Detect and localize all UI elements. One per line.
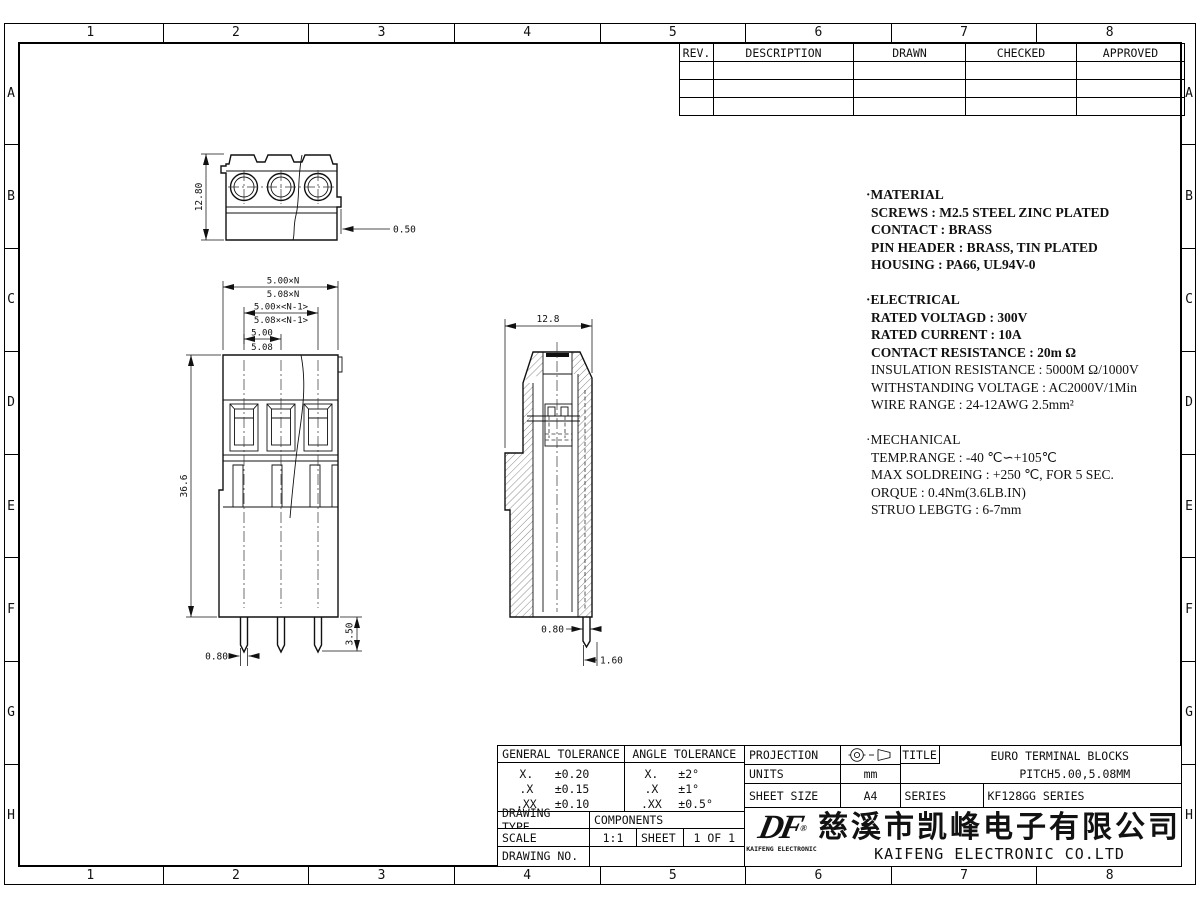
front-view: 5.00×N 5.08×N 5.00×<N-1> 5.08×<N-1> 5.00… — [179, 277, 362, 667]
dimension-label: 5.08 — [251, 343, 273, 353]
drawing-type-row: DRAWING TYPE COMPONENTS — [497, 811, 746, 830]
tolerance-value: ±2° — [678, 767, 744, 781]
dimension-label: 0.80 — [205, 652, 228, 663]
units-value: mm — [840, 765, 900, 784]
tolerance-label: X. — [625, 767, 679, 781]
angle-tolerance-table: ANGLE TOLERANCE X.±2° .X±1° .XX±0.5° — [624, 745, 746, 812]
tolerance-label: .XX — [625, 797, 679, 811]
note-line: MAX SOLDREING : +250 ℃, FOR 5 SEC. — [866, 466, 1186, 484]
border-zone-letters-left: A B C D E F G H — [4, 42, 18, 867]
sheet-size-row: SHEET SIZE A4 — [744, 783, 901, 809]
dimension-label: 5.00×<N-1> — [254, 303, 309, 313]
note-line: HOUSING : PA66, UL94V-0 — [866, 256, 1186, 274]
zone-label: 8 — [1037, 23, 1182, 42]
projection-row: PROJECTION — [744, 745, 901, 765]
drawing-type-value: COMPONENTS — [589, 812, 745, 829]
note-line: INSULATION RESISTANCE : 5000M Ω/1000V — [866, 361, 1186, 379]
note-line: SCREWS : M2.5 STEEL ZINC PLATED — [866, 204, 1186, 222]
table-title: ANGLE TOLERANCE — [625, 746, 745, 763]
dimension-label: 12.80 — [194, 182, 205, 211]
scale-value: 1:1 — [589, 829, 636, 846]
tolerance-value: ±0.5° — [678, 797, 744, 811]
company-name-english: KAIFENG ELECTRONIC CO.LTD — [818, 845, 1181, 863]
dimension-label: 36.6 — [179, 474, 190, 497]
zone-label: 4 — [455, 866, 601, 885]
sheet-size-label: SHEET SIZE — [745, 784, 840, 808]
zone-label: D — [4, 352, 18, 455]
tolerance-label: .X — [625, 782, 679, 796]
zone-label: 3 — [309, 23, 455, 42]
sheet-value: 1 OF 1 — [683, 829, 745, 846]
note-line: WIRE RANGE : 24-12AWG 2.5mm² — [866, 396, 1186, 414]
zone-label: 5 — [601, 23, 747, 42]
note-line: PIN HEADER : BRASS, TIN PLATED — [866, 239, 1186, 257]
rev-header: APPROVED — [1077, 44, 1185, 62]
mechanical-notes: ·MECHANICAL TEMP.RANGE : -40 ℃∽+105℃ MAX… — [866, 431, 1186, 519]
tolerance-value: ±0.15 — [555, 782, 624, 796]
dimension-label: 12.8 — [537, 314, 560, 325]
zone-label: G — [4, 662, 18, 765]
title-label: TITLE — [900, 745, 940, 764]
top-view: 12.80 0.50 — [194, 154, 416, 240]
sheet-label: SHEET — [636, 829, 683, 846]
series-label: SERIES — [901, 784, 983, 808]
rev-empty-row — [680, 98, 1185, 116]
drawing-no-row: DRAWING NO. — [497, 846, 746, 868]
zone-label: 3 — [309, 866, 455, 885]
zone-label: 2 — [164, 866, 310, 885]
zone-label: 4 — [455, 23, 601, 42]
dimension-label: 3.50 — [345, 622, 356, 645]
note-line: CONTACT RESISTANCE : 20m Ω — [866, 344, 1186, 362]
dimension-label: 5.00 — [251, 329, 273, 339]
drawing-views: 12.80 0.50 — [18, 42, 738, 742]
rev-empty-row — [680, 80, 1185, 98]
tolerance-label: X. — [498, 767, 555, 781]
drawing-type-label: DRAWING TYPE — [498, 812, 589, 829]
dimension-label: 5.08×N — [267, 290, 300, 300]
units-row: UNITS mm — [744, 764, 901, 785]
projection-label: PROJECTION — [745, 746, 840, 764]
side-view: 12.8 0.80 1.60 — [505, 314, 623, 667]
kaifeng-logo-icon: DF® — [756, 813, 807, 843]
drawing-title-line1: EURO TERMINAL BLOCKS — [941, 747, 1180, 765]
note-line: TEMP.RANGE : -40 ℃∽+105℃ — [866, 449, 1186, 467]
note-line: RATED CURRENT : 10A — [866, 326, 1186, 344]
material-notes: ·MATERIAL SCREWS : M2.5 STEEL ZINC PLATE… — [866, 186, 1186, 274]
sheet-size-value: A4 — [840, 784, 900, 808]
zone-label: G — [1182, 662, 1196, 765]
third-angle-projection-icon — [847, 747, 895, 763]
series-row: SERIES KF128GG SERIES — [900, 783, 1183, 809]
note-line: ORQUE : 0.4Nm(3.6LB.IN) — [866, 484, 1186, 502]
zone-label: F — [4, 558, 18, 661]
logo-caption: KAIFENG ELECTRONIC — [745, 845, 818, 853]
tolerance-value: ±0.20 — [555, 767, 624, 781]
title-box: TITLE EURO TERMINAL BLOCKS PITCH5.00,5.0… — [900, 745, 1183, 785]
zone-label: B — [4, 145, 18, 248]
note-title: ·MATERIAL — [866, 186, 1186, 204]
dimension-label: 0.50 — [393, 225, 416, 236]
dimension-label: 0.80 — [541, 625, 564, 636]
zone-label: 7 — [892, 23, 1038, 42]
tolerance-label: .X — [498, 782, 555, 796]
zone-label: 7 — [892, 866, 1038, 885]
company-name-chinese: 慈溪市凯峰电子有限公司 — [818, 811, 1181, 845]
note-title: ·ELECTRICAL — [866, 291, 1186, 309]
zone-label: 1 — [18, 23, 164, 42]
border-zone-numbers-top: 1 2 3 4 5 6 7 8 — [18, 23, 1182, 42]
note-line: STRUO LEBGTG : 6-7mm — [866, 501, 1186, 519]
zone-label: 6 — [746, 23, 892, 42]
registered-mark: ® — [799, 823, 805, 833]
units-label: UNITS — [745, 765, 840, 784]
zone-label: C — [4, 249, 18, 352]
zone-label: A — [4, 42, 18, 145]
zone-label: F — [1182, 558, 1196, 661]
note-line: RATED VOLTAGD : 300V — [866, 309, 1186, 327]
dimension-label: 5.00×N — [267, 277, 300, 287]
note-line: WITHSTANDING VOLTAGE : AC2000V/1Min — [866, 379, 1186, 397]
zone-label: 8 — [1037, 866, 1182, 885]
drawing-sheet: 1 2 3 4 5 6 7 8 1 2 3 4 5 6 7 8 A B C D … — [0, 0, 1200, 910]
electrical-notes: ·ELECTRICAL RATED VOLTAGD : 300V RATED C… — [866, 291, 1186, 414]
note-title: ·MECHANICAL — [866, 431, 1186, 449]
general-tolerance-table: GENERAL TOLERANCE X.±0.20 .X±0.15 .XX±0.… — [497, 745, 625, 812]
projection-symbol-cell — [840, 746, 900, 764]
border-zone-numbers-bottom: 1 2 3 4 5 6 7 8 — [18, 866, 1182, 885]
drawing-title-line2: PITCH5.00,5.08MM — [941, 765, 1180, 783]
zone-label: H — [4, 765, 18, 867]
scale-label: SCALE — [498, 829, 589, 846]
series-value: KF128GG SERIES — [983, 784, 1182, 808]
zone-label: H — [1182, 765, 1196, 867]
zone-label: 6 — [746, 866, 892, 885]
rev-header: DRAWN — [854, 44, 966, 62]
zone-label: 1 — [18, 866, 164, 885]
zone-label: 2 — [164, 23, 310, 42]
drawing-no-value — [589, 847, 745, 867]
company-block: DF® KAIFENG ELECTRONIC 慈溪市凯峰电子有限公司 KAIFE… — [744, 807, 1182, 867]
note-line: CONTACT : BRASS — [866, 221, 1186, 239]
company-logo: DF® KAIFENG ELECTRONIC — [745, 808, 818, 866]
zone-label: 5 — [601, 866, 747, 885]
revision-table: REV. DESCRIPTION DRAWN CHECKED APPROVED — [679, 43, 1185, 116]
dimension-label: 1.60 — [600, 656, 623, 667]
table-title: GENERAL TOLERANCE — [498, 746, 624, 763]
drawing-no-label: DRAWING NO. — [498, 847, 589, 867]
zone-label: E — [4, 455, 18, 558]
rev-empty-row — [680, 62, 1185, 80]
tolerance-value: ±1° — [678, 782, 744, 796]
scale-row: SCALE 1:1 SHEET 1 OF 1 — [497, 828, 746, 847]
rev-header: CHECKED — [966, 44, 1077, 62]
dimension-label: 5.08×<N-1> — [254, 316, 309, 326]
